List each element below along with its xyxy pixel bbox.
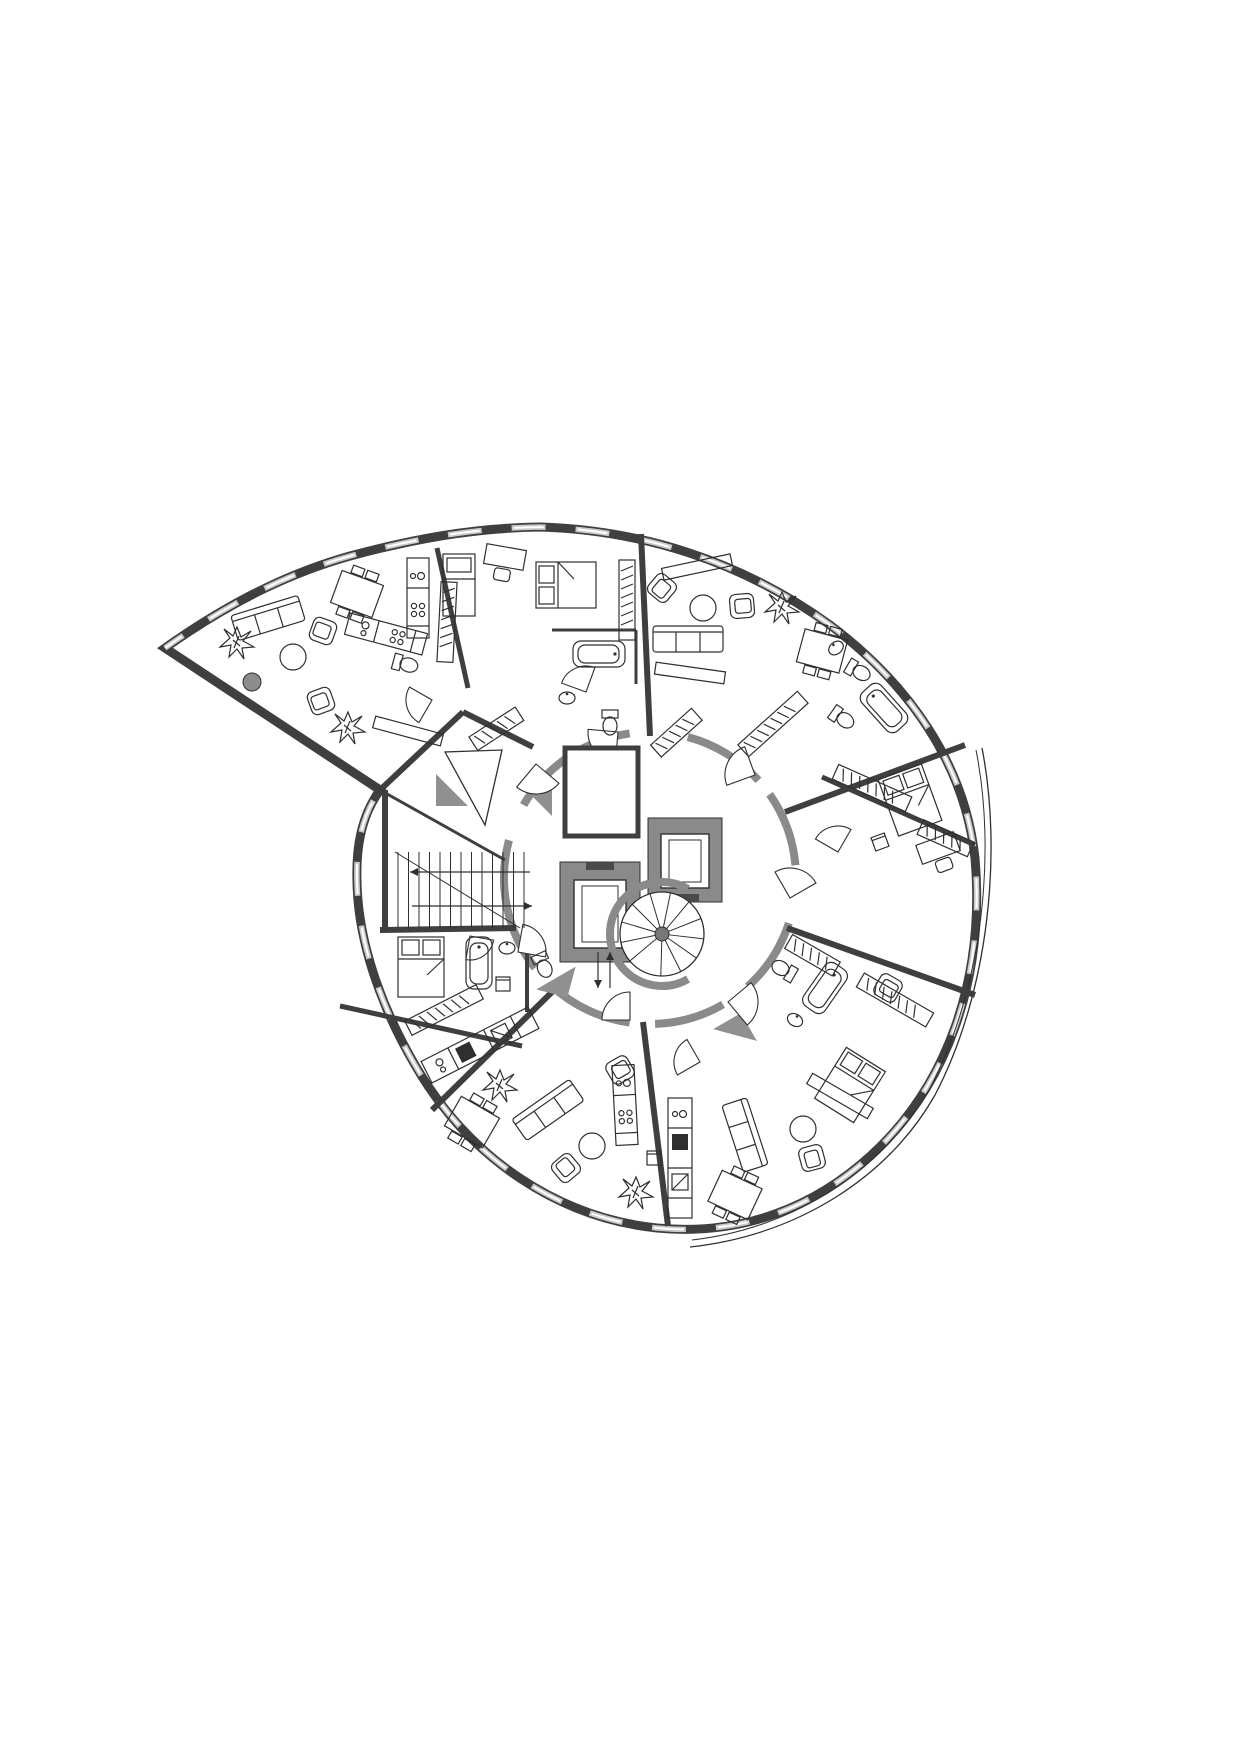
spiral-stair-pole bbox=[655, 927, 669, 941]
interior-partition-wall bbox=[380, 928, 516, 930]
page: { "title_hidden": "", "colors": { "paper… bbox=[0, 0, 1240, 1754]
floor-plan-canvas bbox=[0, 0, 1240, 1754]
duct-room bbox=[565, 748, 638, 836]
round-column bbox=[243, 673, 261, 691]
elevator-a-door bbox=[586, 862, 614, 870]
